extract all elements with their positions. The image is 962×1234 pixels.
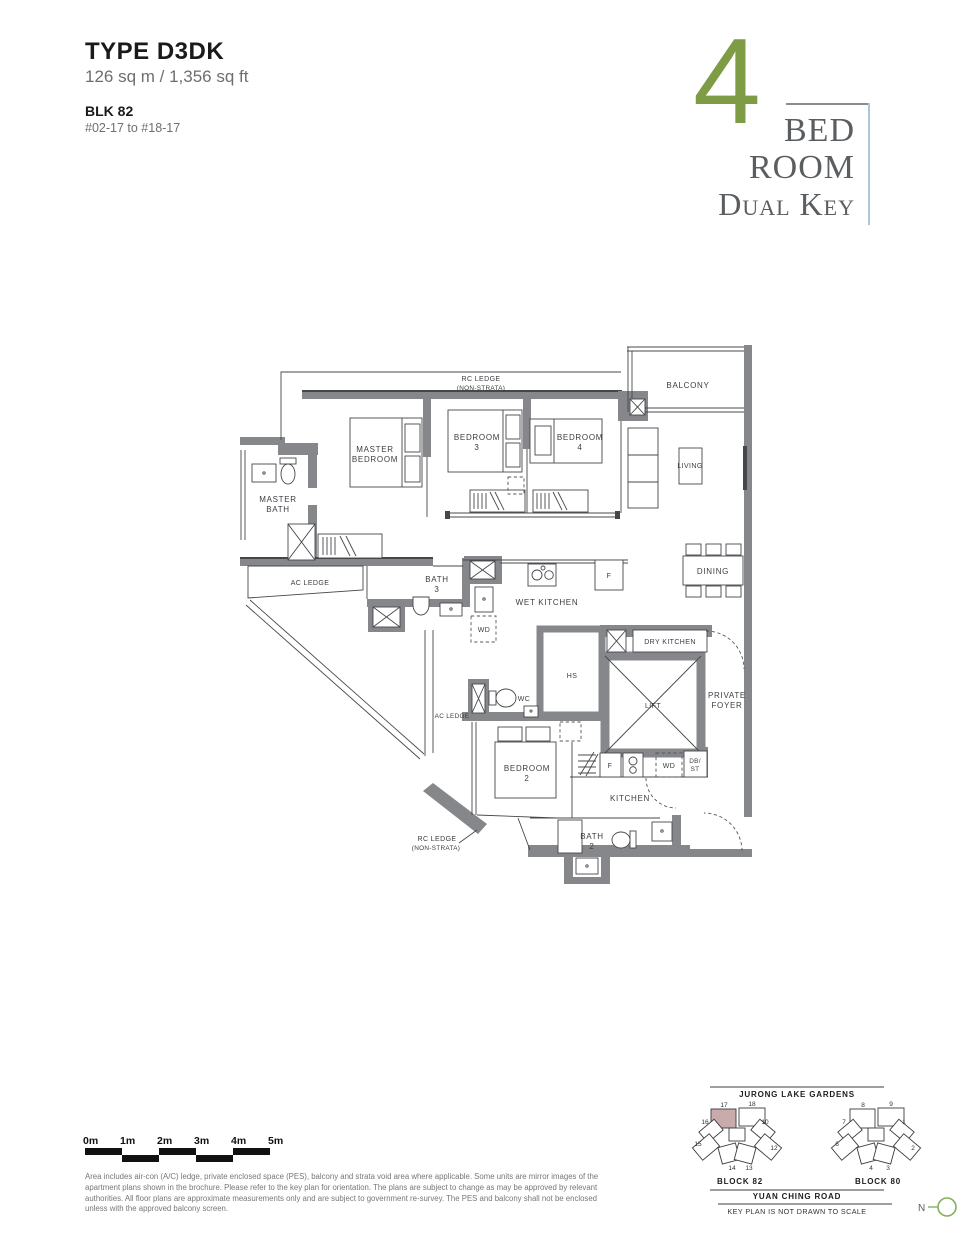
label-master-bedroom-1: MASTER — [356, 445, 394, 454]
label-ac-ledge-left: AC LEDGE — [291, 580, 330, 587]
disclaimer-text: Area includes air-con (A/C) ledge, priva… — [85, 1172, 603, 1215]
unit-12: 12 — [770, 1145, 778, 1152]
label-lift: LIFT — [645, 703, 661, 710]
unit-17: 17 — [720, 1102, 728, 1109]
label-bedroom3-1: BEDROOM — [454, 433, 500, 442]
unit-6: 6 — [835, 1141, 839, 1148]
label-ac-ledge-center: AC LEDGE — [435, 713, 470, 720]
compass-n-label: N — [918, 1203, 925, 1214]
label-master-bath-1: MASTER — [259, 495, 297, 504]
floor-plan-svg: RC LEDGE (NON-STRATA) MASTER BEDROOM BED… — [0, 0, 962, 1234]
unit-2: 2 — [911, 1145, 915, 1152]
label-db-1: DB/ — [689, 758, 701, 765]
scale-3m: 3m — [194, 1135, 209, 1147]
label-private-foyer-2: FOYER — [711, 701, 742, 710]
key-plan-block80: 8 9 7 1 6 2 4 3 BLOCK 80 — [831, 1101, 920, 1186]
label-db-2: ST — [691, 766, 700, 773]
label-dry-kitchen: DRY KITCHEN — [644, 639, 696, 646]
unit-10: 10 — [761, 1119, 769, 1126]
label-kitchen: KITCHEN — [610, 794, 650, 803]
label-f-top: F — [607, 573, 612, 580]
unit-9: 9 — [889, 1101, 893, 1108]
unit-16: 16 — [701, 1119, 709, 1126]
key-plan-block82: 17 18 16 10 15 12 14 13 BLOCK 82 — [692, 1101, 781, 1186]
label-bedroom4-2: 4 — [577, 443, 582, 452]
unit-3: 3 — [886, 1165, 890, 1172]
label-private-foyer-1: PRIVATE — [708, 691, 746, 700]
label-f-bottom: F — [608, 763, 613, 770]
scale-bar: 0m 1m 2m 3m 4m 5m — [83, 1135, 283, 1162]
scale-4m: 4m — [231, 1135, 246, 1147]
road-label: YUAN CHING ROAD — [753, 1192, 841, 1201]
key-plan-gardens-label: JURONG LAKE GARDENS — [739, 1090, 855, 1099]
fixtures — [252, 399, 743, 874]
label-wd-bottom: WD — [663, 763, 675, 770]
unit-13: 13 — [745, 1165, 753, 1172]
label-rc-ledge-top: RC LEDGE — [462, 376, 501, 383]
label-hs: HS — [567, 673, 578, 680]
unit-14: 14 — [728, 1165, 736, 1172]
label-wc: WC — [518, 696, 530, 703]
label-bedroom3-2: 3 — [474, 443, 479, 452]
label-living: LIVING — [677, 463, 702, 470]
label-wet-kitchen: WET KITCHEN — [516, 598, 579, 607]
label-bath3-1: BATH — [425, 575, 449, 584]
label-master-bath-2: BATH — [266, 505, 290, 514]
key-plan: JURONG LAKE GARDENS 17 18 16 10 15 12 14 — [692, 1087, 956, 1216]
scale-5m: 5m — [268, 1135, 283, 1147]
unit-18: 18 — [748, 1101, 756, 1108]
label-rc-ledge-top-sub: (NON-STRATA) — [457, 385, 505, 392]
unit-7: 7 — [842, 1119, 846, 1126]
label-dining: DINING — [697, 567, 729, 576]
label-bath2-1: BATH — [580, 832, 604, 841]
label-bedroom2-1: BEDROOM — [504, 764, 550, 773]
block80-label: BLOCK 80 — [855, 1177, 901, 1186]
scale-1m: 1m — [120, 1135, 135, 1147]
block82-label: BLOCK 82 — [717, 1177, 763, 1186]
label-bedroom2-2: 2 — [524, 774, 529, 783]
key-plan-note: KEY PLAN IS NOT DRAWN TO SCALE — [727, 1207, 866, 1216]
unit-8: 8 — [861, 1102, 865, 1109]
label-balcony: BALCONY — [666, 381, 709, 390]
unit-1: 1 — [902, 1119, 906, 1126]
label-bedroom4-1: BEDROOM — [557, 433, 603, 442]
label-master-bedroom-2: BEDROOM — [352, 455, 398, 464]
label-rc-ledge-bottom: RC LEDGE — [418, 836, 457, 843]
scale-2m: 2m — [157, 1135, 172, 1147]
compass-circle-icon — [938, 1198, 956, 1216]
north-compass: N — [918, 1198, 956, 1216]
label-bath2-2: 2 — [589, 842, 594, 851]
label-wd-top: WD — [478, 627, 490, 634]
label-rc-ledge-bottom-sub: (NON-STRATA) — [412, 845, 460, 852]
unit-4: 4 — [869, 1165, 873, 1172]
floorplan-page: TYPE D3DK 126 sq m / 1,356 sq ft BLK 82 … — [0, 0, 962, 1234]
label-bath3-2: 3 — [434, 585, 439, 594]
scale-0m: 0m — [83, 1135, 98, 1147]
unit-15: 15 — [694, 1141, 702, 1148]
